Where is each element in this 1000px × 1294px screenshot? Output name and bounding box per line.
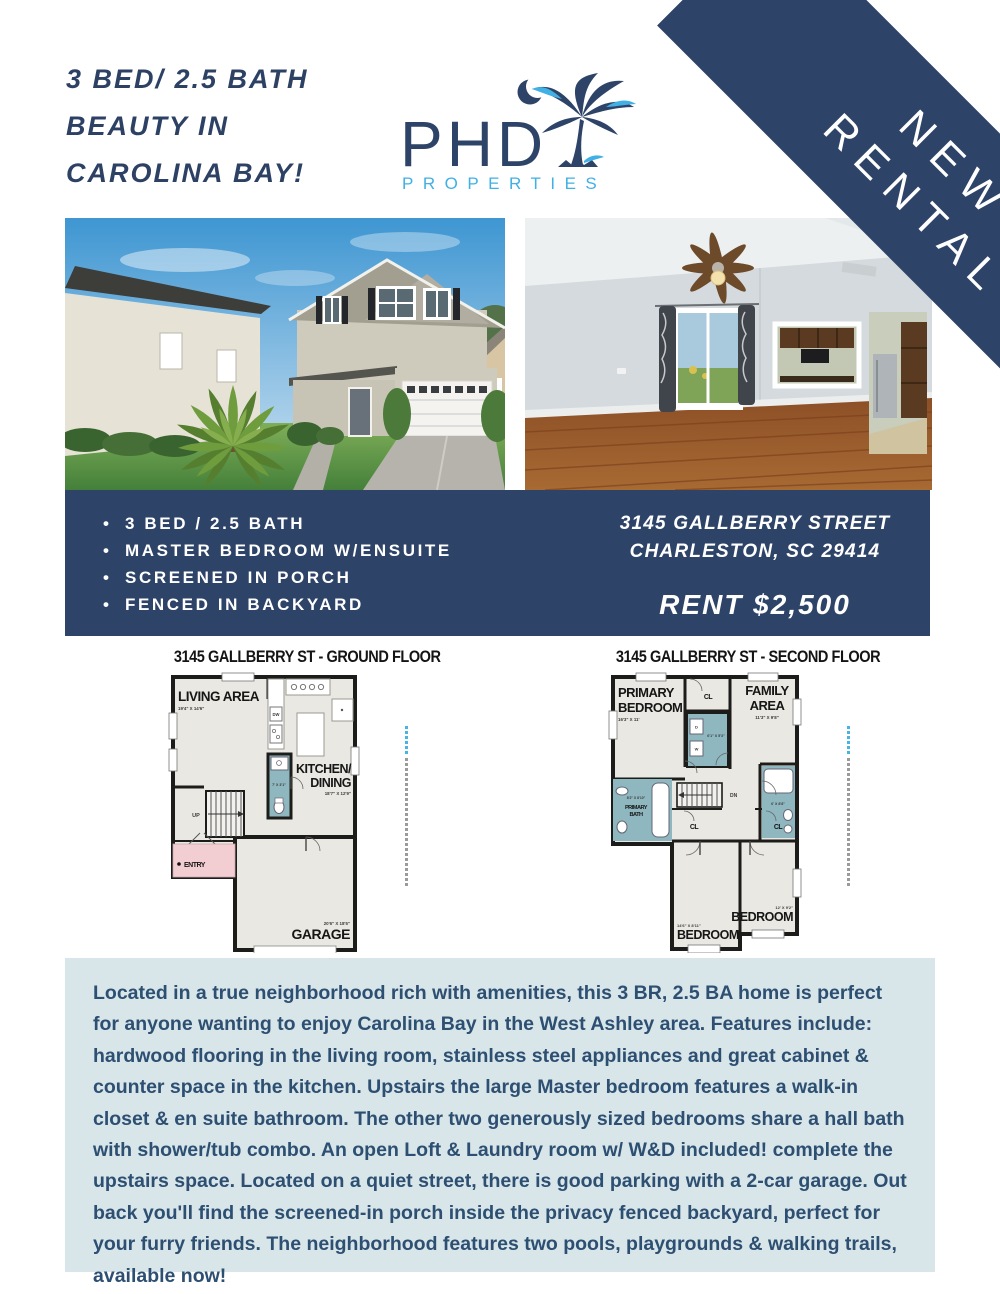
rent-price: RENT $2,500	[580, 589, 930, 621]
bullet-icon: •	[103, 537, 112, 564]
palmetto-moon-icon	[510, 70, 644, 172]
bullet-icon: •	[103, 510, 112, 537]
svg-text:ENTRY: ENTRY	[184, 862, 206, 869]
title-line-3: CAROLINA BAY!	[66, 150, 309, 197]
svg-text:DINING: DINING	[310, 776, 351, 790]
logo-subtitle: PROPERTIES	[402, 174, 606, 194]
floorplan-ground-title: 3145 GALLBERRY ST - GROUND FLOOR	[174, 648, 407, 667]
title-line-1: 3 BED/ 2.5 BATH	[66, 56, 309, 103]
address-line-1: 3145 GALLBERRY STREET	[580, 510, 930, 538]
svg-text:CL: CL	[704, 694, 714, 701]
description-text: Located in a true neighborhood rich with…	[93, 978, 907, 1292]
svg-text:CL: CL	[774, 824, 784, 831]
svg-text:BEDROOM: BEDROOM	[618, 700, 682, 715]
fine-print-strip	[405, 758, 408, 888]
svg-text:AREA: AREA	[750, 698, 786, 713]
page-title: 3 BED/ 2.5 BATH BEAUTY IN CAROLINA BAY!	[66, 56, 309, 197]
svg-text:16'3" X 11': 16'3" X 11'	[618, 717, 640, 722]
bullet-icon: •	[103, 564, 112, 591]
highlight-item: •SCREENED IN PORCH	[101, 564, 580, 591]
fine-print-strip	[405, 726, 408, 754]
svg-text:D: D	[695, 725, 698, 730]
floorplan-ground-drawing: DW 7' X 3'1"	[158, 669, 423, 953]
svg-text:6' X 8'8": 6' X 8'8"	[771, 802, 785, 806]
fine-print-strip	[847, 758, 850, 888]
svg-text:8'2" X 8'10": 8'2" X 8'10"	[627, 796, 646, 800]
svg-text:FAMILY: FAMILY	[745, 683, 789, 698]
svg-text:6'1" X 5'3": 6'1" X 5'3"	[707, 734, 725, 738]
svg-text:12' X 9'2": 12' X 9'2"	[775, 905, 793, 910]
living-room-illustration	[525, 218, 932, 490]
title-line-2: BEAUTY IN	[66, 103, 309, 150]
svg-text:BATH: BATH	[629, 812, 643, 818]
interior-photo	[525, 218, 932, 490]
exterior-photo	[65, 218, 505, 490]
svg-text:19'4" X 14'6": 19'4" X 14'6"	[178, 706, 204, 711]
svg-text:7' X 3'1": 7' X 3'1"	[272, 783, 286, 787]
svg-text:LIVING AREA: LIVING AREA	[178, 689, 260, 704]
svg-text:GARAGE: GARAGE	[292, 926, 351, 942]
highlights-list: •3 BED / 2.5 BATH •MASTER BEDROOM W/ENSU…	[65, 490, 580, 636]
floorplan-second-drawing: D W 6'1" X 5'3" 6' X 8'8" 8'2" X 8'10" P…	[600, 669, 865, 953]
svg-text:CL: CL	[690, 824, 700, 831]
svg-text:20'6" X 18'5": 20'6" X 18'5"	[324, 921, 350, 926]
floorplan-second-title: 3145 GALLBERRY ST - SECOND FLOOR	[616, 648, 849, 667]
svg-text:14'6" X 8'11": 14'6" X 8'11"	[677, 923, 701, 928]
highlight-item: •3 BED / 2.5 BATH	[101, 510, 580, 537]
svg-text:PRIMARY: PRIMARY	[625, 805, 648, 811]
svg-text:DN: DN	[730, 793, 738, 799]
address-line-2: CHARLESTON, SC 29414	[580, 538, 930, 566]
svg-text:11'3" X 9'8": 11'3" X 9'8"	[755, 715, 779, 720]
svg-text:DW: DW	[273, 712, 280, 717]
svg-text:KITCHEN/: KITCHEN/	[296, 762, 352, 776]
bullet-icon: •	[103, 591, 112, 618]
highlights-banner: •3 BED / 2.5 BATH •MASTER BEDROOM W/ENSU…	[65, 490, 930, 636]
fine-print-strip	[847, 726, 850, 754]
svg-text:18'7" X 12'9": 18'7" X 12'9"	[325, 791, 351, 796]
address-block: 3145 GALLBERRY STREET CHARLESTON, SC 294…	[580, 490, 930, 636]
house-exterior-illustration	[65, 218, 505, 490]
svg-text:UP: UP	[192, 813, 200, 819]
description-box: Located in a true neighborhood rich with…	[65, 958, 935, 1272]
floorplan-ground: 3145 GALLBERRY ST - GROUND FLOOR DW	[158, 648, 423, 956]
highlight-item: •MASTER BEDROOM W/ENSUITE	[101, 537, 580, 564]
svg-text:W: W	[695, 747, 699, 752]
phd-properties-logo: PHD PROPERTIES	[400, 68, 650, 200]
svg-text:BEDROOM: BEDROOM	[731, 910, 793, 924]
svg-text:PRIMARY: PRIMARY	[618, 685, 675, 700]
svg-text:BEDROOM: BEDROOM	[677, 928, 739, 942]
highlight-item: •FENCED IN BACKYARD	[101, 591, 580, 618]
floorplan-second: 3145 GALLBERRY ST - SECOND FLOOR D W 6'1…	[600, 648, 865, 956]
flyer-page: 3 BED/ 2.5 BATH BEAUTY IN CAROLINA BAY! …	[0, 0, 1000, 1294]
